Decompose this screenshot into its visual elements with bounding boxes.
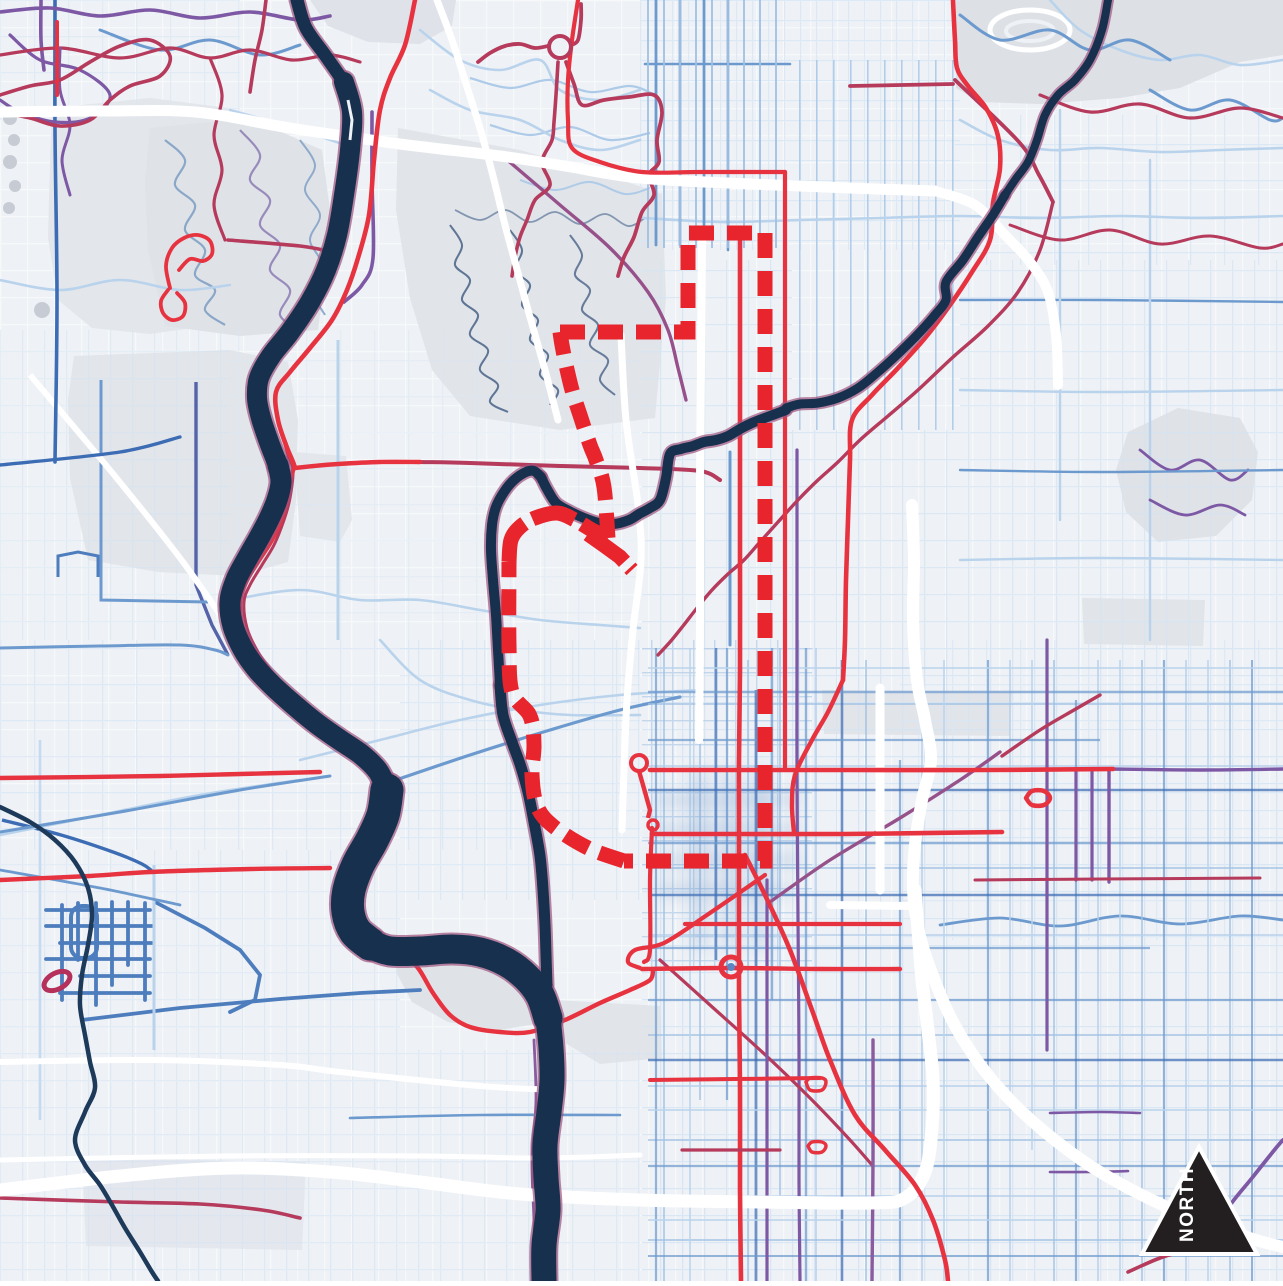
svg-text:NORTH: NORTH (1177, 1167, 1198, 1242)
